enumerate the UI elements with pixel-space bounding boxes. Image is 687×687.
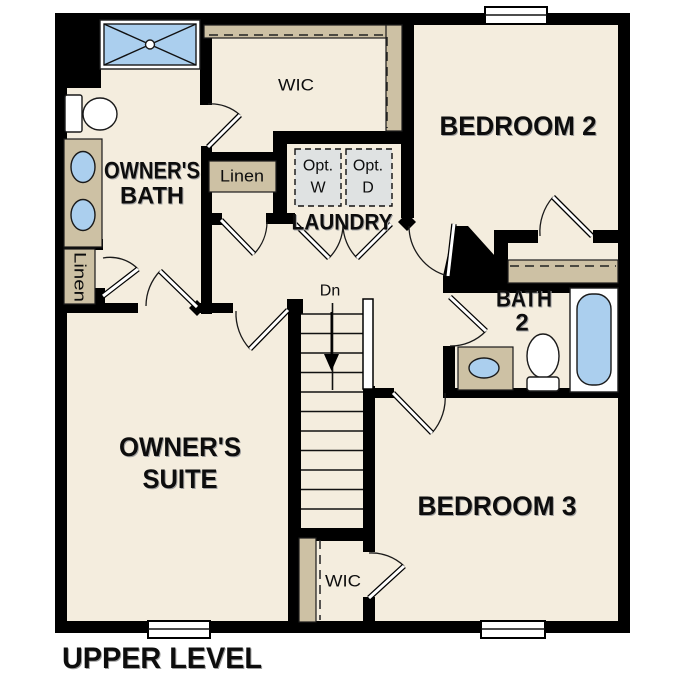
linen-label: Linen — [71, 252, 90, 302]
owners-bath-label-line2: BATH — [120, 183, 184, 210]
opt-d-line1: Opt. — [353, 158, 383, 175]
sink — [469, 358, 499, 378]
stairs-down-label: Dn — [320, 283, 340, 300]
bathtub — [577, 294, 611, 385]
toilet-bowl — [527, 334, 559, 378]
owners-suite-label-line1: OWNER'S — [119, 432, 241, 462]
plan-caption: UPPER LEVEL — [62, 642, 262, 675]
opt-w-line2: W — [310, 180, 326, 197]
linen-label: Linen — [220, 167, 264, 186]
toilet-tank — [527, 377, 559, 391]
bedroom2-closet — [508, 260, 618, 283]
toilet-tank — [65, 95, 82, 132]
shower-drain — [146, 40, 155, 49]
hall-linen: Linen — [209, 161, 276, 192]
bath2-label-line2: 2 — [515, 310, 528, 337]
sink — [71, 200, 95, 231]
floor-plan-page: Linen OWNER'S BATH WIC Linen Opt. W Opt.… — [0, 0, 687, 687]
owners-bath-label-line1: OWNER'S — [104, 158, 200, 185]
closet-shelf — [299, 538, 316, 622]
stair-railing — [363, 299, 373, 389]
opt-d-line2: D — [362, 180, 374, 197]
closet-shelf — [508, 260, 618, 283]
bedroom2-label: BEDROOM 2 — [440, 111, 597, 141]
toilet-bowl — [83, 98, 117, 130]
wic-bottom-label: WIC — [325, 572, 361, 591]
opt-w-line1: Opt. — [303, 158, 333, 175]
corner-wall-mass — [55, 13, 101, 88]
bedroom3-label: BEDROOM 3 — [418, 491, 577, 521]
wic-top-label: WIC — [278, 76, 314, 95]
bath2-label-line1: BATH — [496, 286, 552, 313]
owners-suite-label-line2: SUITE — [143, 464, 218, 494]
laundry-label: LAUNDRY — [292, 210, 393, 235]
sink — [71, 152, 95, 183]
floor-plan-drawing: Linen OWNER'S BATH WIC Linen Opt. W Opt.… — [0, 0, 687, 687]
closet-shelf — [204, 25, 402, 38]
closet-shelf — [386, 25, 402, 131]
